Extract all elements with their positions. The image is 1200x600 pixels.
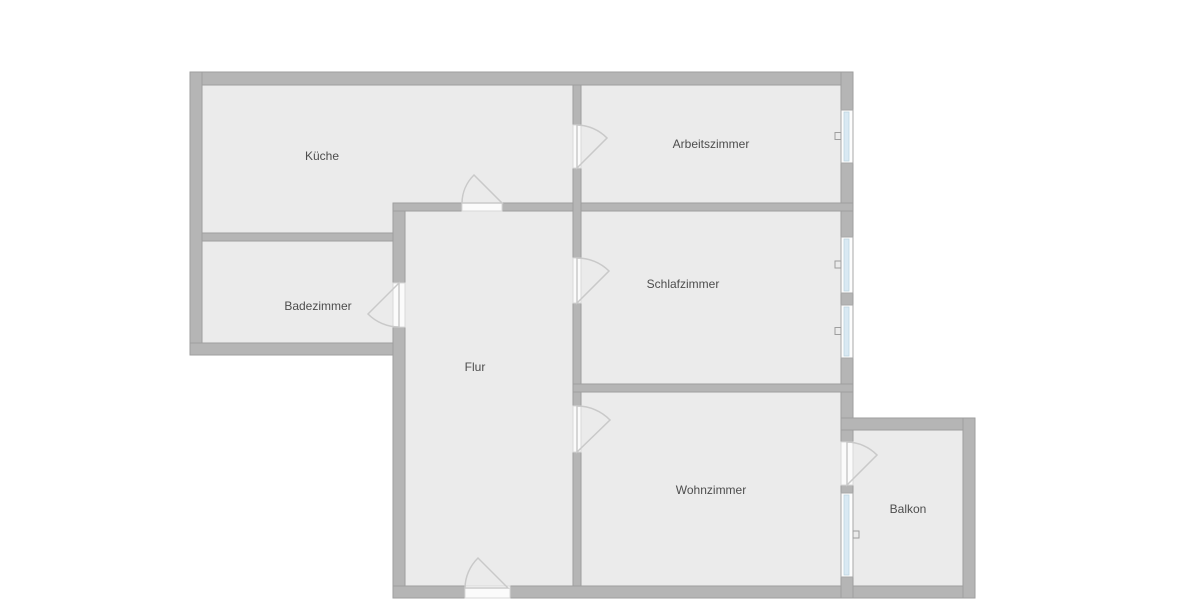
room-label-kueche: Küche	[305, 149, 339, 163]
room-label-balkon: Balkon	[890, 502, 927, 516]
room-label-schlafzimmer: Schlafzimmer	[647, 277, 720, 291]
wall-balcony-divider-1	[841, 485, 853, 493]
window-schlafzimmer-1-glass	[844, 239, 849, 291]
wall-exterior-right-1	[841, 72, 853, 110]
wall-balcony-top	[841, 418, 975, 430]
floorplan-canvas: KücheArbeitszimmerBadezimmerFlurSchlafzi…	[0, 0, 1200, 600]
room-label-flur: Flur	[465, 360, 486, 374]
wall-balcony-right	[963, 418, 975, 598]
door-kueche-sill	[462, 203, 502, 211]
room-label-wohnzimmer: Wohnzimmer	[676, 483, 746, 497]
wall-exterior-right-2	[841, 163, 853, 237]
wall-exterior-top	[190, 72, 853, 85]
window-schlafzimmer-2-glass	[844, 307, 849, 356]
window-arbeitszimmer-glass	[844, 112, 849, 161]
wall-hall-top-left	[393, 203, 462, 211]
room-label-arbeitszimmer: Arbeitszimmer	[673, 137, 750, 151]
wall-exterior-left	[190, 72, 202, 355]
wall-exterior-right-3	[841, 293, 853, 305]
wall-hall-left	[393, 203, 405, 598]
room-schlafzimmer[interactable]	[581, 211, 841, 384]
room-badezimmer[interactable]	[202, 241, 393, 343]
wall-vertical-divider-2	[573, 168, 581, 258]
room-label-badezimmer: Badezimmer	[284, 299, 351, 313]
floorplan: KücheArbeitszimmerBadezimmerFlurSchlafzi…	[0, 0, 1200, 600]
window-balkon-glass	[844, 495, 849, 575]
wall-vertical-divider-4	[573, 452, 581, 586]
wall-bedroom-living-divider	[573, 384, 853, 392]
wall-balcony-divider-2	[841, 577, 853, 598]
wall-hall-top-right	[502, 203, 853, 211]
wall-exterior-bath-bottom	[190, 343, 405, 355]
wall-bath-top	[202, 233, 393, 241]
room-flur[interactable]	[405, 211, 573, 586]
wall-vertical-divider-1	[573, 85, 581, 125]
